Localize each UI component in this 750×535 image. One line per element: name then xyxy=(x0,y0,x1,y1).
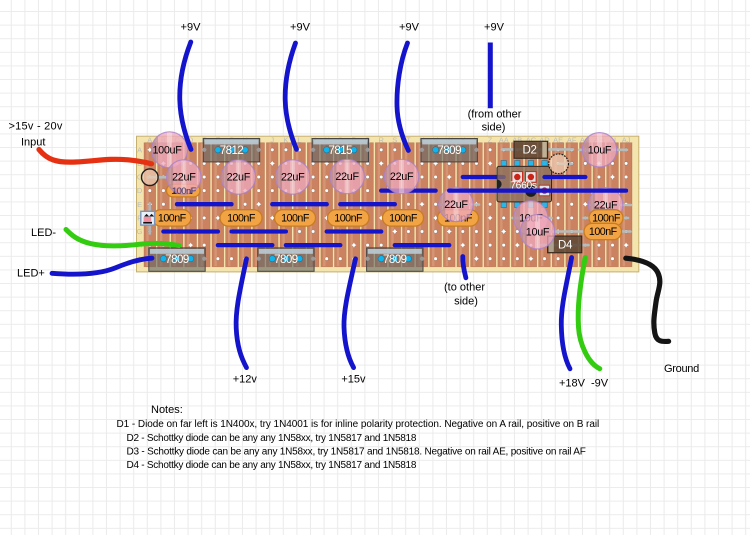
svg-text:D3 - Schottky diode can be any: D3 - Schottky diode can be any any 1N58x… xyxy=(127,446,586,457)
svg-text:AJ: AJ xyxy=(622,135,631,144)
svg-text:E: E xyxy=(137,200,142,209)
svg-text:22uF: 22uF xyxy=(281,172,305,184)
svg-text:7809: 7809 xyxy=(165,254,189,266)
svg-text:Ground: Ground xyxy=(664,363,699,375)
svg-text:AE: AE xyxy=(553,135,563,144)
svg-text:LED+: LED+ xyxy=(17,267,45,279)
svg-text:7815: 7815 xyxy=(329,145,353,157)
svg-text:A: A xyxy=(137,145,142,154)
svg-text:+9V: +9V xyxy=(290,22,311,34)
svg-text:10uF: 10uF xyxy=(526,227,550,239)
svg-text:D4: D4 xyxy=(558,240,573,252)
svg-text:7809: 7809 xyxy=(274,254,298,266)
svg-text:+9V: +9V xyxy=(399,22,420,34)
svg-text:S: S xyxy=(392,135,397,144)
svg-text:+15v: +15v xyxy=(341,374,366,386)
svg-text:100nF: 100nF xyxy=(172,186,197,196)
svg-text:D: D xyxy=(137,186,143,195)
svg-text:Notes:: Notes: xyxy=(151,404,183,416)
svg-text:(from other: (from other xyxy=(468,108,522,120)
svg-text:+18V: +18V xyxy=(559,377,586,389)
svg-text:22uF: 22uF xyxy=(444,199,468,211)
svg-text:100uF: 100uF xyxy=(152,145,182,157)
svg-text:100nF: 100nF xyxy=(334,213,363,225)
svg-text:Z: Z xyxy=(488,135,493,144)
svg-text:10uF: 10uF xyxy=(588,145,612,157)
svg-text:22uF: 22uF xyxy=(227,172,251,184)
svg-text:side): side) xyxy=(454,296,478,308)
svg-text:22uF: 22uF xyxy=(335,171,359,183)
svg-text:K: K xyxy=(283,135,288,144)
svg-text:L: L xyxy=(297,135,301,144)
svg-text:G: G xyxy=(137,227,143,236)
svg-text:side): side) xyxy=(482,122,506,134)
svg-text:AF: AF xyxy=(567,135,577,144)
svg-text:22uF: 22uF xyxy=(390,171,414,183)
svg-text:100nF: 100nF xyxy=(281,213,310,225)
svg-text:7812: 7812 xyxy=(220,145,244,157)
svg-text:D2: D2 xyxy=(523,145,537,157)
svg-text:+9V: +9V xyxy=(484,22,505,34)
svg-text:100nF: 100nF xyxy=(227,213,256,225)
svg-text:100nF: 100nF xyxy=(389,213,418,225)
svg-text:J: J xyxy=(270,135,274,144)
svg-text:-9V: -9V xyxy=(591,377,609,389)
svg-text:100nF: 100nF xyxy=(589,226,618,238)
svg-text:7809: 7809 xyxy=(437,145,461,157)
svg-text:LED-: LED- xyxy=(31,227,56,239)
svg-text:AA: AA xyxy=(499,135,509,144)
svg-text:+12v: +12v xyxy=(233,374,258,386)
svg-text:R: R xyxy=(378,135,384,144)
svg-text:22uF: 22uF xyxy=(172,172,196,184)
svg-text:D2 - Schottky diode can be any: D2 - Schottky diode can be any any 1N58x… xyxy=(127,433,417,444)
svg-text:Input: Input xyxy=(21,136,45,148)
svg-text:>15v - 20v: >15v - 20v xyxy=(9,121,63,133)
svg-text:100nF: 100nF xyxy=(158,213,187,225)
svg-text:A: A xyxy=(147,135,152,144)
svg-text:+9V: +9V xyxy=(181,22,202,34)
svg-text:7809: 7809 xyxy=(383,254,407,266)
svg-text:D4 - Schottky diode can be any: D4 - Schottky diode can be any any 1N58x… xyxy=(127,460,417,471)
svg-text:D1 - Diode on far left is 1N40: D1 - Diode on far left is 1N400x, try 1N… xyxy=(117,419,600,430)
svg-text:(to other: (to other xyxy=(444,282,485,294)
